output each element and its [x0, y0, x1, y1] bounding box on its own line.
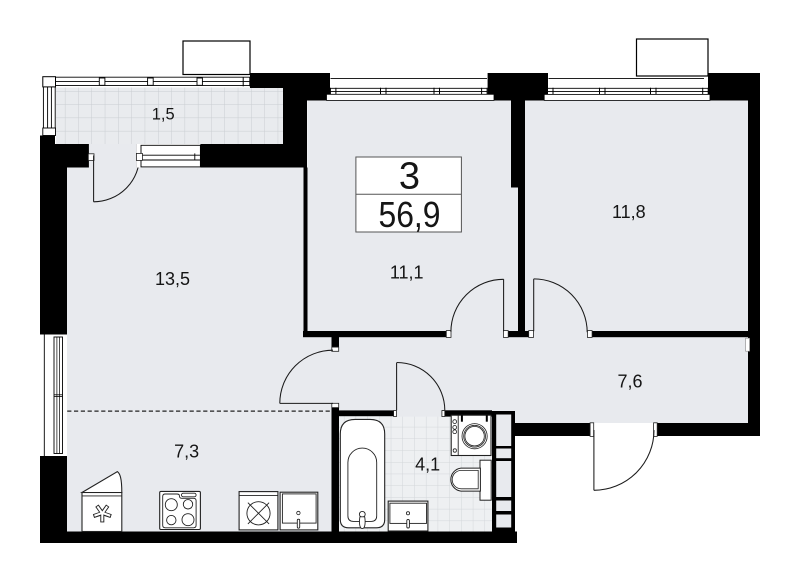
svg-text:3: 3 — [399, 155, 420, 197]
svg-text:56,9: 56,9 — [378, 195, 440, 235]
svg-text:1,5: 1,5 — [152, 106, 175, 124]
svg-text:13,5: 13,5 — [155, 269, 190, 289]
svg-text:11,8: 11,8 — [612, 202, 646, 222]
svg-text:7,3: 7,3 — [174, 441, 199, 461]
svg-text:7,6: 7,6 — [617, 371, 642, 391]
svg-text:11,1: 11,1 — [390, 263, 424, 283]
svg-text:4,1: 4,1 — [415, 454, 440, 474]
